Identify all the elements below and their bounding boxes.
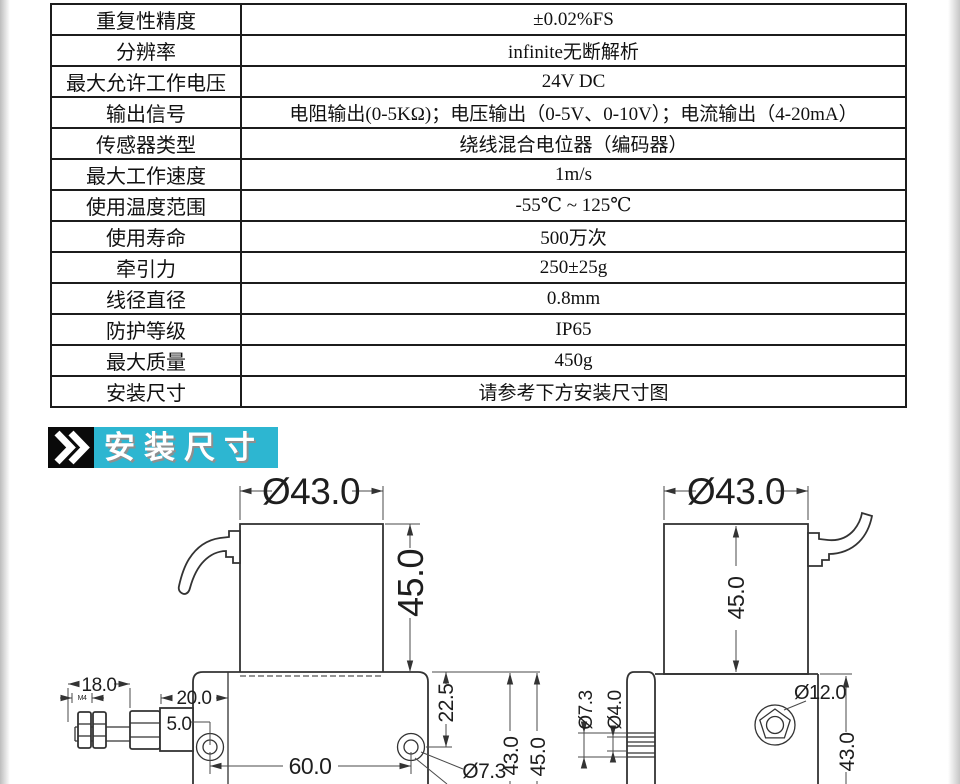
installation-drawings: Ø43.0 45.0 18.0 M4 20.0 5.0 60.0: [0, 455, 960, 784]
dim-left-top-diameter: Ø43.0: [262, 471, 360, 512]
dim-guide-outer-diameter: Ø7.3: [576, 690, 597, 729]
dim-left-body-height: 45.0: [390, 549, 431, 617]
wire-outlet: [755, 705, 795, 745]
dim-outlet-diameter: Ø12.0: [794, 682, 846, 704]
table-row: 分辨率infinite无断解析: [51, 35, 906, 66]
dim-thread-spec: M4: [78, 695, 87, 702]
spec-table: 重复性精度±0.02%FS 分辨率infinite无断解析 最大允许工作电压24…: [50, 3, 907, 408]
table-row: 防护等级IP65: [51, 314, 906, 345]
table-row: 最大工作速度1m/s: [51, 159, 906, 190]
spec-label: 传感器类型: [51, 128, 241, 159]
table-row: 使用寿命500万次: [51, 221, 906, 252]
dim-guide-groove-diameter: Ø4.0: [605, 690, 626, 729]
spec-value: 250±25g: [241, 252, 906, 283]
spec-value: -55℃ ~ 125℃: [241, 190, 906, 221]
wire-guide-cylinder: [627, 672, 655, 784]
spec-label: 输出信号: [51, 97, 241, 128]
spec-value: infinite无断解析: [241, 35, 906, 66]
spec-label: 防护等级: [51, 314, 241, 345]
spec-label: 重复性精度: [51, 4, 241, 35]
spec-label: 分辨率: [51, 35, 241, 66]
section-banner: 安装尺寸: [48, 427, 278, 468]
dim-block-length: 20.0: [177, 688, 212, 709]
table-row: 最大允许工作电压24V DC: [51, 66, 906, 97]
table-row: 安装尺寸请参考下方安装尺寸图: [51, 376, 906, 407]
left-cable-hook: [179, 531, 240, 594]
spec-label: 最大允许工作电压: [51, 66, 241, 97]
double-chevron-icon: [48, 427, 94, 468]
spec-value: 电阻输出(0-5KΩ)；电压输出（0-5V、0-10V）；电流输出（4-20mA…: [241, 97, 906, 128]
spec-value: 请参考下方安装尺寸图: [241, 376, 906, 407]
spec-value: 1m/s: [241, 159, 906, 190]
spec-label: 牵引力: [51, 252, 241, 283]
table-row: 输出信号电阻输出(0-5KΩ)；电压输出（0-5V、0-10V）；电流输出（4-…: [51, 97, 906, 128]
dim-right-body-height: 45.0: [723, 577, 749, 620]
section-title: 安装尺寸: [94, 427, 278, 468]
dim-thread-length: 18.0: [82, 675, 117, 696]
spec-label: 使用温度范围: [51, 190, 241, 221]
spec-value: 500万次: [241, 221, 906, 252]
dim-right-top-diameter: Ø43.0: [687, 471, 785, 512]
spec-label: 安装尺寸: [51, 376, 241, 407]
table-row: 重复性精度±0.02%FS: [51, 4, 906, 35]
table-row: 使用温度范围-55℃ ~ 125℃: [51, 190, 906, 221]
left-drawing: Ø43.0 45.0 18.0 M4 20.0 5.0 60.0: [60, 471, 550, 784]
table-row: 最大质量450g: [51, 345, 906, 376]
dim-right-base-43: 43.0: [836, 733, 859, 772]
dim-hole-pitch: 60.0: [289, 753, 332, 779]
spec-label: 线径直径: [51, 283, 241, 314]
right-drawing: Ø43.0 45.0 Ø7.3 Ø4.0 Ø12.0 43.0: [576, 471, 872, 784]
spec-label: 最大工作速度: [51, 159, 241, 190]
dim-hole-top-offset: 22.5: [435, 684, 458, 723]
table-row: 传感器类型绕线混合电位器（编码器）: [51, 128, 906, 159]
left-sensor-body: [240, 524, 383, 674]
table-row: 牵引力250±25g: [51, 252, 906, 283]
spec-value: ±0.02%FS: [241, 4, 906, 35]
dim-left-base-43: 43.0: [500, 737, 523, 776]
dim-hole-edge-offset: 5.0: [167, 714, 192, 735]
right-cable-hook: [808, 513, 872, 566]
dim-left-base-45: 45.0: [527, 738, 550, 777]
spec-value: 绕线混合电位器（编码器）: [241, 128, 906, 159]
table-row: 线径直径0.8mm: [51, 283, 906, 314]
spec-value: 0.8mm: [241, 283, 906, 314]
spec-label: 最大质量: [51, 345, 241, 376]
spec-value: 450g: [241, 345, 906, 376]
spec-label: 使用寿命: [51, 221, 241, 252]
spec-value: 24V DC: [241, 66, 906, 97]
spec-value: IP65: [241, 314, 906, 345]
